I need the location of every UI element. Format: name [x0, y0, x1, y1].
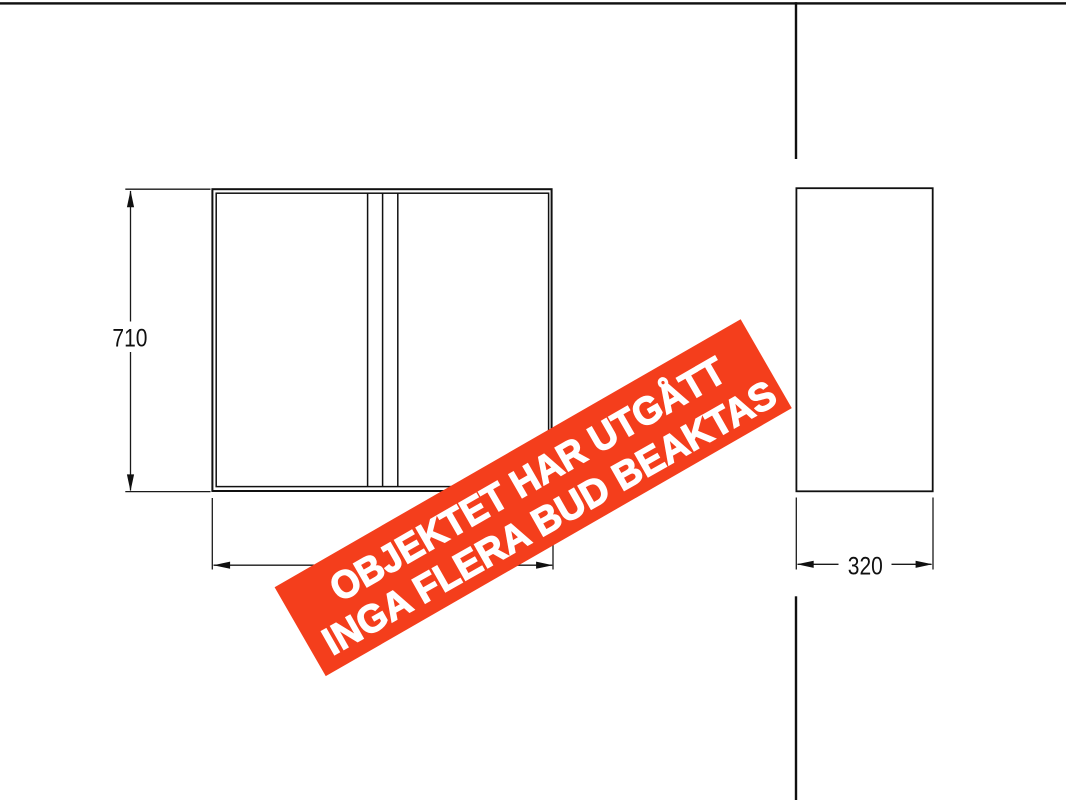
svg-text:710: 710 [112, 324, 147, 352]
svg-text:320: 320 [848, 552, 883, 580]
svg-text:OBJEKTET HAR UTGÅTT: OBJEKTET HAR UTGÅTT [322, 348, 733, 611]
svg-text:INGA FLERA BUD BEAKTAS: INGA FLERA BUD BEAKTAS [315, 373, 783, 664]
